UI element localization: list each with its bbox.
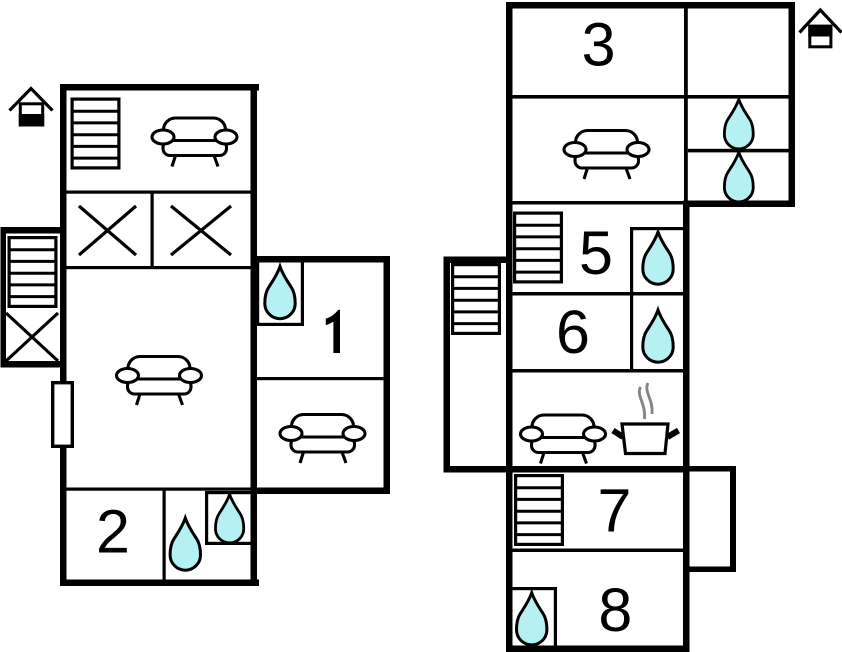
svg-text:5: 5: [579, 219, 613, 287]
svg-text:2: 2: [96, 498, 130, 566]
svg-text:7: 7: [598, 477, 632, 545]
svg-text:8: 8: [598, 576, 632, 644]
svg-text:3: 3: [582, 11, 616, 79]
svg-text:6: 6: [556, 298, 590, 366]
